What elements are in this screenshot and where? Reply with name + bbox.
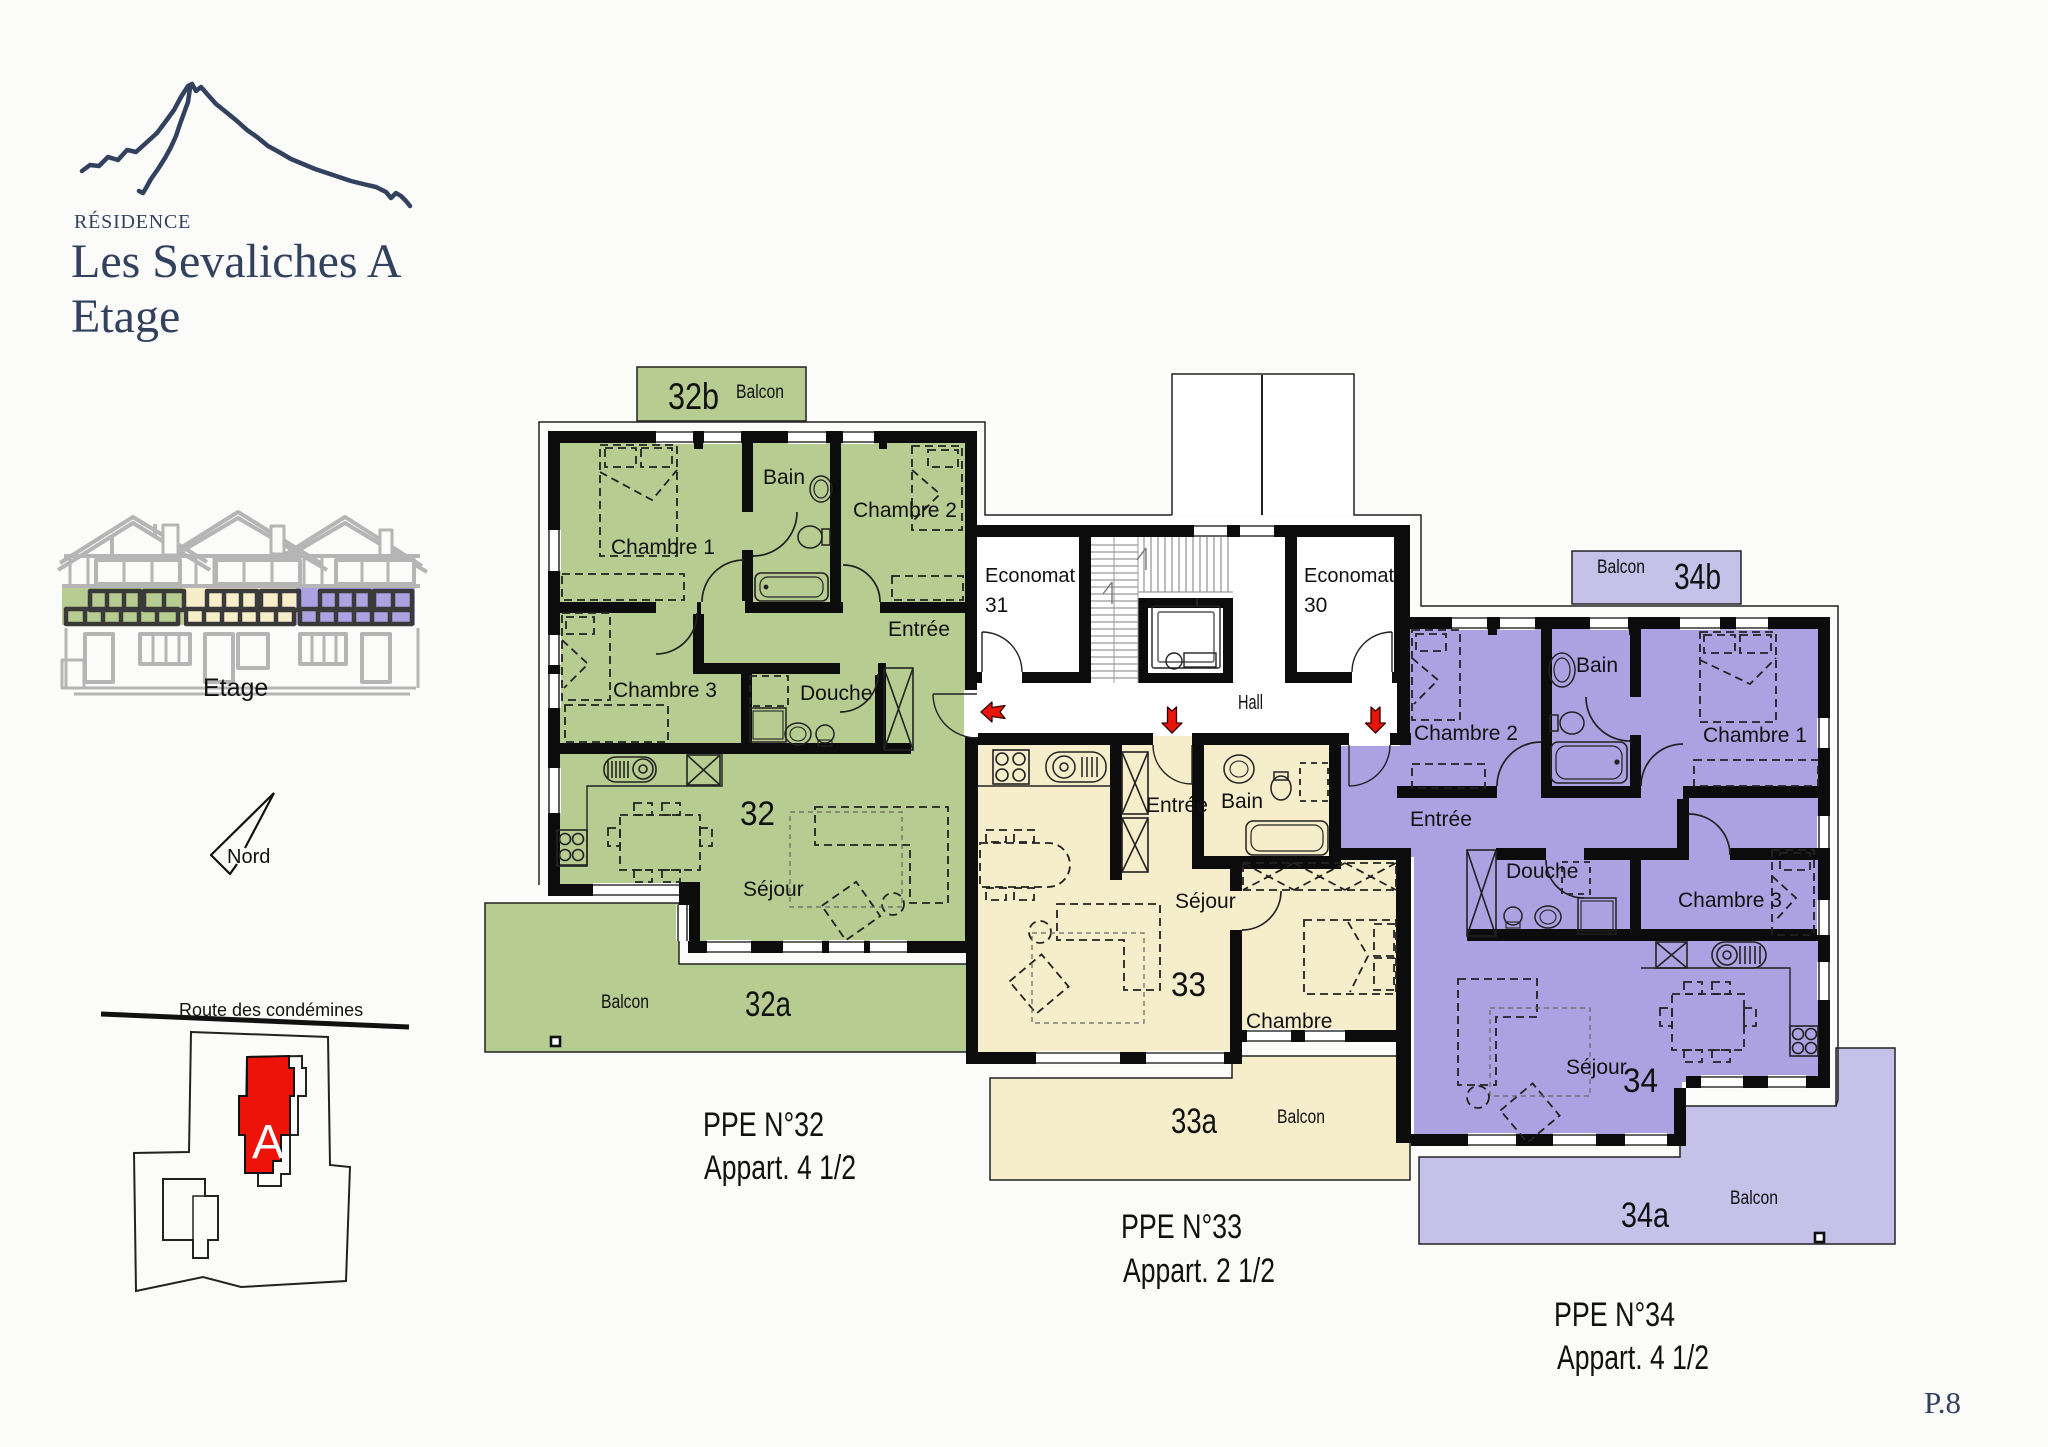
svg-text:Bain: Bain [1576,654,1618,677]
svg-text:Douche: Douche [800,682,872,705]
svg-text:Entrée: Entrée [888,618,950,641]
svg-text:Entrée: Entrée [1146,794,1208,817]
svg-text:A: A [252,1116,284,1169]
svg-text:30: 30 [1304,594,1327,617]
svg-text:Chambre 1: Chambre 1 [1703,724,1807,747]
svg-text:Appart. 4 1/2: Appart. 4 1/2 [704,1149,856,1187]
svg-text:Bain: Bain [1221,790,1263,813]
svg-text:Balcon: Balcon [601,992,649,1013]
svg-text:34: 34 [1623,1062,1658,1100]
svg-text:Séjour: Séjour [1175,890,1236,913]
svg-text:34a: 34a [1621,1196,1669,1235]
svg-text:Séjour: Séjour [743,878,804,901]
svg-text:PPE N°34: PPE N°34 [1554,1296,1675,1334]
svg-text:34b: 34b [1674,556,1721,597]
svg-text:33: 33 [1171,966,1206,1004]
svg-text:Séjour: Séjour [1566,1056,1627,1079]
svg-text:Balcon: Balcon [1730,1188,1778,1209]
svg-text:Appart. 2 1/2: Appart. 2 1/2 [1123,1252,1275,1290]
svg-text:Chambre 3: Chambre 3 [1678,889,1782,912]
svg-text:32: 32 [740,795,775,833]
svg-text:Chambre 2: Chambre 2 [1414,722,1518,745]
svg-text:Hall: Hall [1238,692,1263,714]
svg-text:Chambre: Chambre [1246,1010,1332,1033]
svg-text:32a: 32a [745,985,791,1024]
svg-text:31: 31 [985,594,1008,617]
svg-text:P.8: P.8 [1924,1385,1961,1420]
svg-text:Balcon: Balcon [736,382,784,403]
svg-text:Nord: Nord [227,846,270,868]
svg-text:Economat: Economat [1304,565,1394,587]
svg-text:Chambre 2: Chambre 2 [853,499,957,522]
svg-text:Douche: Douche [1506,860,1578,883]
svg-text:Balcon: Balcon [1277,1107,1325,1128]
svg-text:32b: 32b [668,376,719,417]
svg-text:Appart. 4 1/2: Appart. 4 1/2 [1557,1339,1709,1377]
svg-text:Les Sevaliches A: Les Sevaliches A [71,235,402,288]
svg-text:Entrée: Entrée [1410,808,1472,831]
svg-text:Etage: Etage [71,290,180,343]
svg-text:Etage: Etage [203,674,268,702]
svg-text:PPE N°32: PPE N°32 [703,1106,824,1144]
svg-text:Balcon: Balcon [1597,557,1645,578]
svg-text:Chambre 1: Chambre 1 [611,536,715,559]
svg-text:Economat: Economat [985,565,1075,587]
svg-text:Chambre 3: Chambre 3 [613,679,717,702]
svg-text:PPE N°33: PPE N°33 [1121,1208,1242,1246]
svg-text:33a: 33a [1171,1102,1217,1141]
svg-text:RÉSIDENCE: RÉSIDENCE [74,210,191,233]
svg-text:Bain: Bain [763,466,805,489]
